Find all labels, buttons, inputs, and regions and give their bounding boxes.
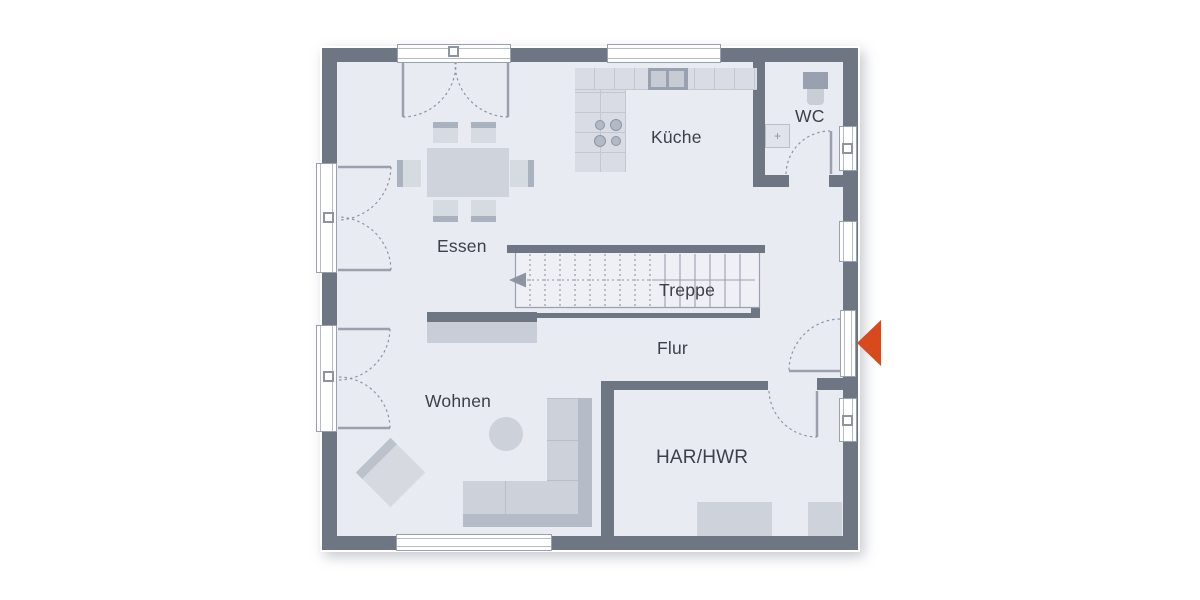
wall-wc-bottom-stub [829,175,843,187]
sofa-cushion-line [505,481,506,514]
stove-burner-icon [610,119,622,131]
living-window-bottom [396,534,552,551]
dining-table [427,148,509,197]
window-handle-icon [842,415,853,426]
sofa-seat-horizontal [463,481,547,514]
entrance-door-frame [840,310,856,377]
room-label-wc: WC [795,106,825,126]
dining-chair [471,122,496,143]
wall-entry-stub [817,378,843,390]
kitchen-window [607,44,721,63]
coffee-table [489,417,523,451]
wall-outer-right [843,48,858,550]
window-handle-icon [323,212,334,223]
utility-appliance [808,502,842,536]
stove-burner-icon [594,135,606,147]
entrance-arrow-icon [857,320,881,366]
wall-under-stairs-stub [751,303,760,318]
hall-window [839,221,857,262]
dining-chair [510,160,534,187]
window-handle-icon [323,371,334,382]
dining-chair [433,200,458,222]
room-label-kueche: Küche [651,127,702,147]
sofa-cushion-line [547,440,578,441]
toilet-bowl [807,89,824,105]
wall-wc-bottom [753,175,789,187]
sofa-cushion-line [547,480,578,481]
window-handle-icon [448,46,459,57]
utility-appliance [697,502,772,536]
sofa-backrest-bottom [463,514,578,527]
wall-har-left [601,381,614,536]
room-label-wohnen: Wohnen [425,391,491,411]
room-label-har-hwr: HAR/HWR [656,447,748,469]
wall-har-top [601,381,768,390]
room-label-treppe: Treppe [659,280,715,300]
wall-stairs-top [507,245,765,253]
floor-plan-canvas: + [0,0,1200,600]
dining-chair [471,200,496,222]
kitchen-counter-divider [600,90,601,172]
sofa-backrest-right [578,398,592,527]
room-label-flur: Flur [657,338,688,358]
dining-chair [397,160,421,187]
wall-under-stairs-thick [427,312,537,322]
wall-under-stairs-thin [537,313,760,318]
washbasin: + [765,124,790,148]
sideboard [427,322,537,343]
dining-chair [433,122,458,143]
stove-burner-icon [611,136,621,146]
wall-outer-left [322,48,337,550]
toilet-tank [803,72,828,89]
room-label-essen: Essen [437,236,487,256]
sink-basin [669,71,684,87]
window-handle-icon [842,143,853,154]
kitchen-sink [648,68,688,90]
stove-burner-icon [595,120,605,130]
sink-basin [651,71,666,87]
sofa-seat-vertical [547,398,578,514]
